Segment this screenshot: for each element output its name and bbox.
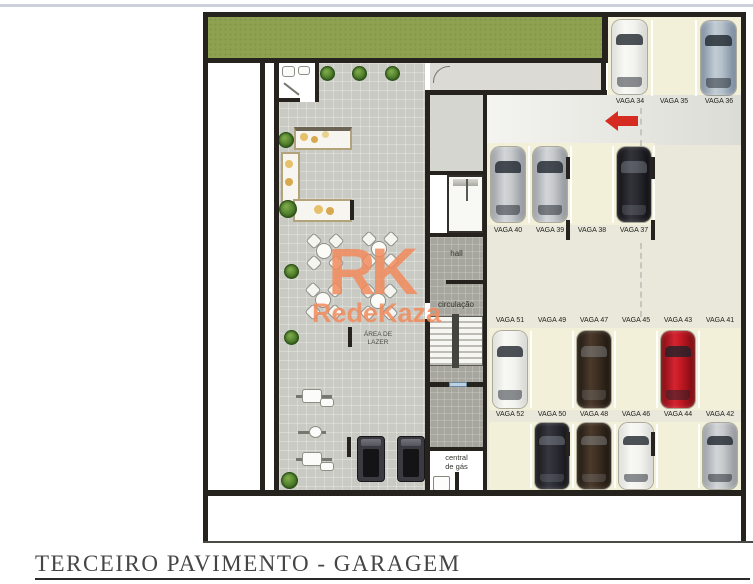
outer-wall-left <box>203 12 208 543</box>
garden-right-wall <box>602 12 608 63</box>
setback-wall-inner <box>274 63 279 490</box>
food-tray <box>300 133 308 141</box>
gym-machine-seat <box>309 426 322 438</box>
aisle-center-dash <box>640 243 642 317</box>
leisure-wall-stub <box>347 437 351 457</box>
plant <box>320 66 335 81</box>
gas-room-inner-wall <box>455 472 459 490</box>
spot-label: VAGA 52 <box>489 411 531 418</box>
stall-divider <box>651 20 653 96</box>
circulation-floor <box>430 364 483 447</box>
gas-label-line1: central <box>430 453 483 462</box>
stall-divider <box>612 146 614 223</box>
elevator-lobby-floor <box>430 95 483 172</box>
corridor-right-wall <box>601 63 606 93</box>
car-vaga-42 <box>703 423 737 489</box>
gym-machine-bench <box>302 452 322 466</box>
plant <box>284 330 299 345</box>
hall-top-wall <box>425 233 487 237</box>
car-vaga-34 <box>612 20 647 94</box>
area-lazer-label-line2: LAZER <box>356 339 400 346</box>
food-tray <box>322 131 329 138</box>
plant <box>278 132 294 148</box>
wc-fixture <box>298 66 310 75</box>
plant <box>279 200 297 218</box>
ramp-lane-dash <box>640 108 642 146</box>
wc-fixture <box>282 66 295 77</box>
area-lazer-label-line1: ÁREA DE <box>356 331 400 338</box>
spot-label: VAGA 44 <box>657 411 699 418</box>
leisure-wall-stub <box>348 327 352 347</box>
garden-bottom-wall <box>208 58 607 63</box>
spot-label: VAGA 48 <box>573 411 615 418</box>
hall-label: hall <box>430 249 483 258</box>
core-left-wall-upper <box>425 90 430 303</box>
car-vaga-39 <box>533 147 567 222</box>
stall-divider <box>530 331 532 408</box>
car-vaga-46 <box>619 423 653 489</box>
car-vaga-51 <box>493 331 527 408</box>
counter-wall-stub <box>350 200 354 220</box>
treadmill <box>397 436 425 482</box>
garden-strip <box>208 17 605 58</box>
stall-divider <box>572 331 574 408</box>
food-tray <box>311 136 318 143</box>
plan-base-line <box>203 541 753 543</box>
car-vaga-40 <box>491 147 525 222</box>
food-tray <box>314 205 323 214</box>
corridor-bottom-wall <box>425 90 607 95</box>
outer-wall-top <box>203 12 746 17</box>
spot-label: VAGA 39 <box>529 227 571 234</box>
entry-arrow-shaft <box>617 116 638 126</box>
plant <box>385 66 400 81</box>
core-right-wall <box>483 90 487 490</box>
car-vaga-48 <box>577 423 611 489</box>
stall-divider <box>698 331 700 408</box>
floor-plan-page: VAGA 34 VAGA 35 VAGA 36 VAGA 40 VAGA 39 … <box>0 0 753 584</box>
stall-divider <box>656 424 658 488</box>
spot-label: VAGA 47 <box>573 317 615 324</box>
elevator-shaft <box>430 175 445 233</box>
hall-bottom-wall <box>446 280 487 284</box>
stall-divider <box>698 424 700 488</box>
stall-divider <box>614 331 616 408</box>
gas-label-line2: de gás <box>430 462 483 471</box>
stall-divider <box>656 331 658 408</box>
stall-stub <box>566 432 570 456</box>
gas-room-top-wall <box>425 447 487 451</box>
corridor-floor <box>430 63 601 90</box>
gas-cylinder <box>433 476 450 491</box>
plant <box>352 66 367 81</box>
plant <box>281 472 298 489</box>
spot-label: VAGA 41 <box>699 317 741 324</box>
side-setback <box>208 63 260 490</box>
stall-divider <box>530 424 532 488</box>
title-underline <box>35 578 750 580</box>
stall-divider <box>572 424 574 488</box>
stall-divider <box>695 20 697 96</box>
plant <box>284 264 299 279</box>
outer-wall-right <box>741 12 746 543</box>
spot-label: VAGA 43 <box>657 317 699 324</box>
spot-label: VAGA 51 <box>489 317 531 324</box>
stall-stub <box>651 220 655 240</box>
spot-label: VAGA 46 <box>615 411 657 418</box>
spot-label: VAGA 35 <box>653 98 695 105</box>
food-tray <box>285 178 293 186</box>
elevator <box>447 175 484 233</box>
car-vaga-43 <box>661 331 695 408</box>
car-vaga-50 <box>535 423 569 489</box>
stair-landing-door <box>449 382 467 387</box>
spot-label: VAGA 37 <box>613 227 655 234</box>
spot-label: VAGA 40 <box>487 227 529 234</box>
spot-label: VAGA 38 <box>571 227 613 234</box>
car-vaga-37 <box>617 147 651 222</box>
spot-label: VAGA 49 <box>531 317 573 324</box>
setback-wall-outer <box>260 63 265 490</box>
stall-stub <box>651 432 655 456</box>
spot-label: VAGA 50 <box>531 411 573 418</box>
stall-stub <box>651 157 655 179</box>
outer-wall-bottom <box>203 490 746 496</box>
food-tray <box>326 207 334 215</box>
watermark-logo: RK <box>328 238 413 304</box>
elevator-lobby-wall <box>425 171 487 175</box>
food-tray <box>285 160 293 168</box>
wc-bottom-wall <box>279 98 300 102</box>
core-left-wall-lower <box>425 319 430 490</box>
spot-label: VAGA 34 <box>609 98 651 105</box>
gym-machine-pad <box>320 398 334 407</box>
stall-stub <box>566 220 570 240</box>
page-title: TERCEIRO PAVIMENTO - GARAGEM <box>35 551 461 577</box>
wc-right-wall <box>315 63 319 102</box>
page-top-rule <box>0 4 753 7</box>
gym-machine-bench <box>302 389 322 403</box>
stall-divider <box>570 146 572 223</box>
stall-divider <box>528 146 530 223</box>
spot-label: VAGA 45 <box>615 317 657 324</box>
stall-stub <box>566 157 570 179</box>
watermark-brand: RedeKaza <box>312 300 441 327</box>
spot-label: VAGA 36 <box>698 98 740 105</box>
treadmill <box>357 436 385 482</box>
car-vaga-36 <box>701 21 736 95</box>
stall-divider <box>614 424 616 488</box>
car-vaga-47 <box>577 331 611 408</box>
spot-label: VAGA 42 <box>699 411 741 418</box>
stair-stringer <box>452 314 459 368</box>
gym-machine-pad <box>320 462 334 471</box>
